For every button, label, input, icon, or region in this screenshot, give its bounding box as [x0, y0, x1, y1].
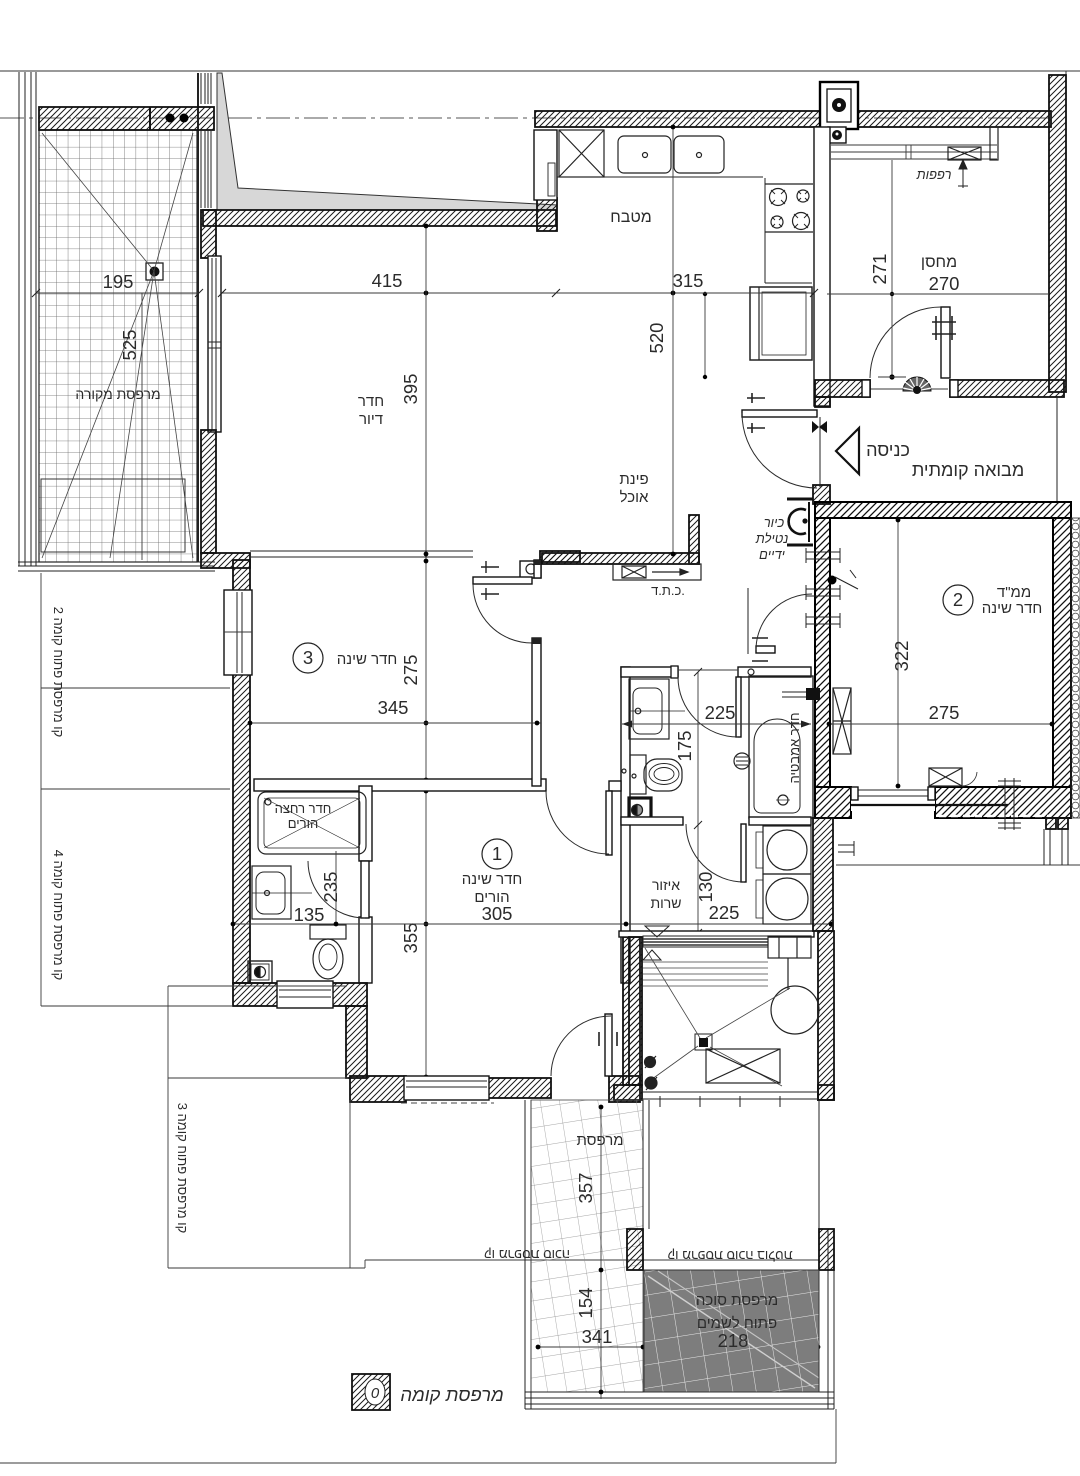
svg-text:מחסן: מחסן	[921, 254, 957, 271]
svg-text:ידיים: ידיים	[759, 547, 786, 562]
svg-text:כניסה: כניסה	[866, 440, 910, 460]
svg-text:345: 345	[378, 697, 409, 718]
svg-text:225: 225	[709, 902, 740, 923]
svg-text:מרפסת סוכה: מרפסת סוכה	[696, 1292, 778, 1309]
svg-text:נטילת: נטילת	[755, 531, 789, 546]
svg-text:130: 130	[695, 872, 716, 903]
svg-text:1: 1	[492, 843, 502, 864]
svg-text:כ.ת.ד.: כ.ת.ד.	[651, 583, 685, 598]
svg-text:0: 0	[371, 1385, 380, 1402]
svg-text:271: 271	[869, 254, 890, 285]
svg-text:175: 175	[674, 731, 695, 762]
svg-text:מרפסת: מרפסת	[576, 1132, 623, 1149]
svg-text:135: 135	[294, 904, 325, 925]
svg-text:275: 275	[929, 702, 960, 723]
svg-text:מרפסת קומה: מרפסת קומה	[400, 1384, 503, 1405]
svg-text:415: 415	[372, 270, 403, 291]
svg-text:218: 218	[718, 1330, 749, 1351]
svg-text:חדר אמבטיה: חדר אמבטיה	[787, 712, 802, 783]
svg-text:חדר: חדר	[358, 393, 384, 410]
svg-text:525: 525	[119, 330, 140, 361]
svg-text:315: 315	[673, 270, 704, 291]
svg-text:כיור: כיור	[764, 515, 785, 530]
svg-text:חדר שינה: חדר שינה	[337, 651, 398, 668]
svg-text:אוכל: אוכל	[620, 489, 649, 506]
svg-text:שרות: שרות	[650, 895, 681, 911]
svg-text:קו מרפסת סוכה בולטת: קו מרפסת סוכה בולטת	[667, 1248, 792, 1263]
svg-text:520: 520	[646, 323, 667, 354]
svg-text:195: 195	[103, 271, 134, 292]
svg-text:פינת: פינת	[619, 471, 648, 488]
svg-text:קו מרפסת פתוח קומה 3: קו מרפסת פתוח קומה 3	[175, 1103, 190, 1234]
svg-text:דיור: דיור	[359, 411, 383, 428]
svg-text:154: 154	[575, 1288, 596, 1319]
svg-text:3: 3	[303, 647, 313, 668]
svg-text:ממ"ד: ממ"ד	[997, 584, 1031, 601]
svg-text:רפפות: רפפות	[916, 167, 952, 182]
svg-text:הורים: הורים	[288, 816, 319, 831]
svg-text:קו מרפסת פתוח קומה 2: קו מרפסת פתוח קומה 2	[51, 607, 66, 738]
svg-text:235: 235	[320, 872, 341, 903]
svg-text:305: 305	[482, 903, 513, 924]
svg-text:322: 322	[891, 641, 912, 672]
svg-text:מבואה קומתית: מבואה קומתית	[912, 460, 1024, 480]
svg-text:חדר רחצה: חדר רחצה	[275, 801, 332, 816]
svg-text:275: 275	[400, 655, 421, 686]
svg-text:מרפסת מקורה: מרפסת מקורה	[75, 386, 160, 402]
svg-text:מטבח: מטבח	[610, 209, 652, 226]
svg-text:341: 341	[582, 1326, 613, 1347]
svg-text:איזור: איזור	[652, 877, 680, 893]
svg-text:355: 355	[400, 923, 421, 954]
svg-text:2: 2	[953, 589, 963, 610]
svg-text:395: 395	[400, 374, 421, 405]
svg-text:חדר שינה: חדר שינה	[982, 600, 1043, 617]
svg-text:225: 225	[705, 702, 736, 723]
svg-text:קו מרפסת פתוח קומה 4: קו מרפסת פתוח קומה 4	[51, 850, 66, 981]
svg-text:357: 357	[575, 1173, 596, 1204]
svg-text:270: 270	[929, 273, 960, 294]
svg-text:חדר שינה: חדר שינה	[462, 871, 523, 888]
